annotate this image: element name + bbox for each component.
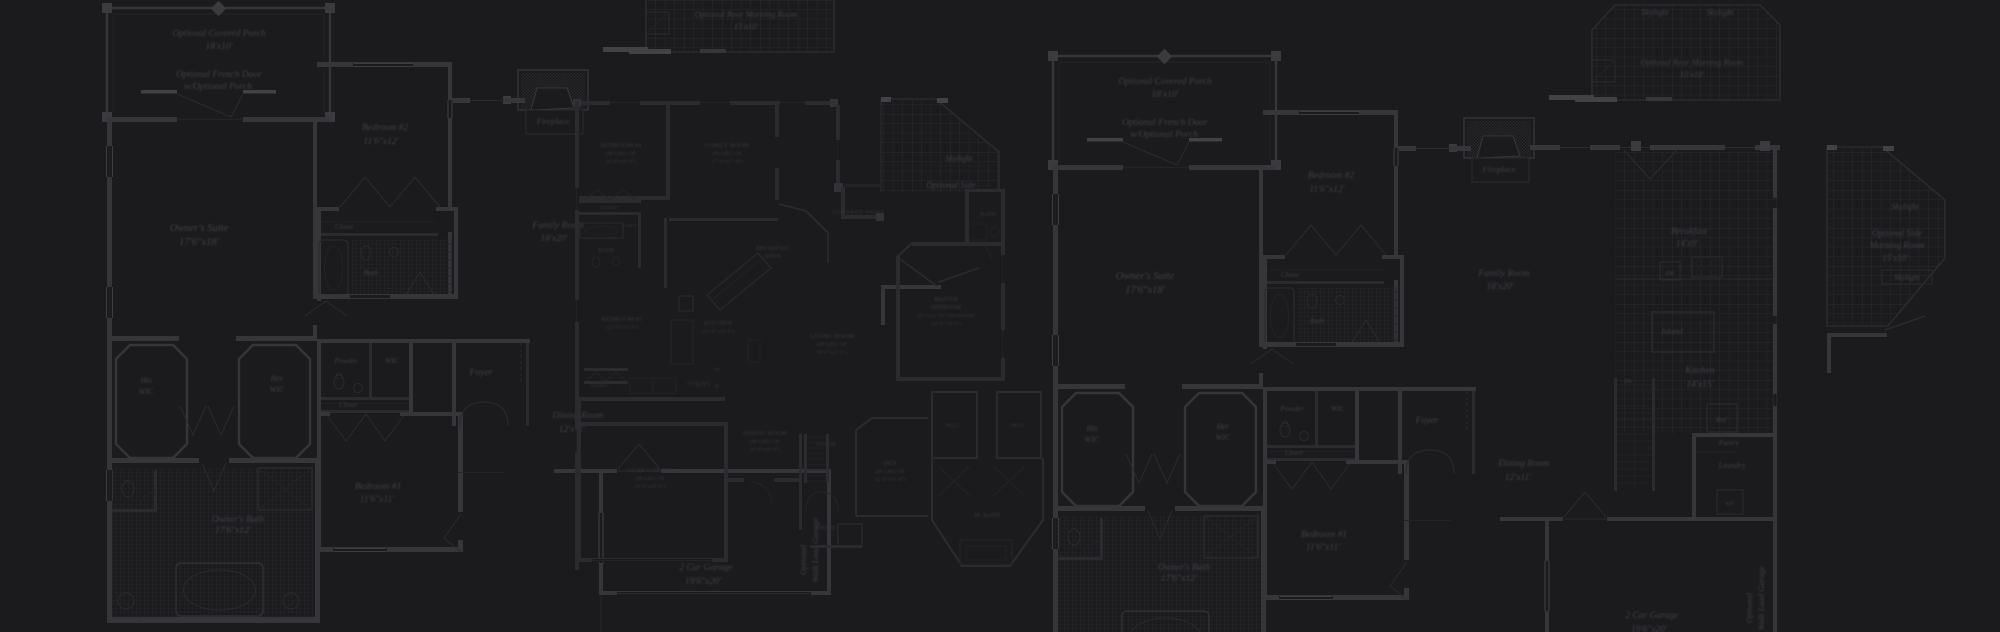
svg-text:Dining Room: Dining Room [1498,459,1550,469]
svg-text:Optional Rear Morning Room: Optional Rear Morning Room [1641,57,1744,67]
svg-text:WIC: WIC [1331,404,1346,413]
svg-text:BATH: BATH [598,248,614,254]
svg-text:LINEN: LINEN [623,223,637,228]
svg-text:15'x10': 15'x10' [1680,69,1705,79]
svg-text:Ref: Ref [1715,415,1727,424]
svg-text:Owner's Suite: Owner's Suite [170,223,229,234]
svg-text:Island: Island [1660,326,1683,336]
svg-text:CLOSET: CLOSET [601,206,620,211]
svg-text:Optional: Optional [798,544,808,575]
svg-text:UTILITY: UTILITY [687,382,711,388]
svg-text:2 Car Garage: 2 Car Garage [1625,611,1678,621]
svg-text:Skylight: Skylight [1706,7,1734,17]
svg-text:Skylight: Skylight [1891,201,1919,211]
svg-text:W.I.C.: W.I.C. [1011,423,1027,429]
svg-text:BEDROOM: BEDROOM [931,305,962,311]
svg-text:(12'-0"x11'-0"): (12'-0"x11'-0") [606,324,639,331]
svg-text:19'6"x20': 19'6"x20' [1631,625,1668,632]
svg-text:(IN LIEU OF: (IN LIEU OF [875,468,905,475]
svg-text:BEDROOM #3: BEDROOM #3 [602,316,643,323]
svg-text:12'-0"x11'-0"): 12'-0"x11'-0") [749,446,780,453]
svg-text:Morning Room: Morning Room [1869,240,1925,250]
svg-text:11'6"x11': 11'6"x11' [360,495,396,505]
svg-text:12'x11': 12'x11' [559,425,587,435]
svg-text:18'x10': 18'x10' [1151,90,1179,100]
svg-text:Kitchen: Kitchen [1684,366,1715,376]
svg-text:LIVING ROOM: LIVING ROOM [810,333,854,340]
svg-text:14'x9': 14'x9' [1676,239,1699,249]
svg-text:(IN LIEU OF: (IN LIEU OF [817,341,847,348]
svg-text:Optional: Optional [1744,592,1754,623]
svg-text:Her: Her [270,374,284,383]
svg-text:Skylight: Skylight [1894,273,1921,282]
svg-text:17'6"x18': 17'6"x18' [1125,285,1166,296]
svg-text:Owner's Bath: Owner's Bath [1158,563,1210,573]
svg-text:Powder: Powder [333,356,357,365]
svg-text:17'6"x12': 17'6"x12' [1161,574,1198,584]
svg-text:17'6"x18': 17'6"x18' [179,237,220,248]
svg-text:Optional Rear Morning Room: Optional Rear Morning Room [695,9,798,19]
svg-text:Optional Side: Optional Side [1872,228,1922,238]
svg-text:w/Optional Porch: w/Optional Porch [184,82,252,92]
svg-text:Walk Load Garage: Walk Load Garage [1756,566,1766,631]
svg-text:Fireplace: Fireplace [1482,164,1516,174]
svg-text:COVERED PATIO: COVERED PATIO [832,210,884,216]
svg-text:Foyer: Foyer [469,368,493,378]
svg-text:18'x20': 18'x20' [540,234,568,244]
svg-text:11'6"x11': 11'6"x11' [1306,543,1342,553]
svg-text:Optional Covered Porch: Optional Covered Porch [1118,77,1211,87]
svg-text:His: His [1085,424,1097,433]
svg-text:(IN LIEU OF: (IN LIEU OF [750,438,780,445]
svg-text:(12'-0"x16'-0"): (12'-0"x16'-0") [931,322,961,327]
svg-text:Pantry: Pantry [1718,438,1740,447]
svg-text:Optional Side: Optional Side [926,180,976,190]
svg-text:Closet: Closet [1285,449,1304,457]
svg-text:19'6"x20': 19'6"x20' [685,577,722,587]
svg-text:BEDROOM #4: BEDROOM #4 [601,142,642,149]
svg-text:15'x10': 15'x10' [734,21,759,31]
svg-text:3 CAR GARAGE: 3 CAR GARAGE [627,467,674,474]
svg-text:Bedroom #2: Bedroom #2 [362,123,409,133]
svg-text:11'6"x12': 11'6"x12' [1309,185,1345,195]
svg-text:FAMILY ROOM: FAMILY ROOM [705,142,750,149]
svg-text:DW: DW [1664,271,1675,277]
svg-text:Optional French Door: Optional French Door [1122,118,1208,128]
svg-text:D: D [715,384,719,390]
svg-text:MASTER: MASTER [934,297,958,303]
svg-text:Her: Her [1216,422,1230,431]
svg-text:WIC: WIC [385,356,400,365]
svg-text:DEN: DEN [883,460,897,467]
svg-text:12'-0"x11'-0"): 12'-0"x11'-0") [874,476,905,483]
svg-text:(IN LIEU OF TWO BDRM): (IN LIEU OF TWO BDRM) [917,314,975,319]
svg-text:(12'-0"x14'-0"): (12'-0"x14'-0") [701,328,734,335]
svg-text:Foyer: Foyer [1415,416,1439,426]
svg-text:WIC: WIC [139,387,154,396]
svg-text:Laundry: Laundry [1717,461,1746,470]
svg-text:Bedroom #1: Bedroom #1 [1301,530,1347,540]
svg-text:Closet: Closet [1281,271,1300,279]
svg-text:Fireplace: Fireplace [536,116,570,126]
svg-text:(IN LIEU OF: (IN LIEU OF [635,475,665,482]
svg-text:ENTRY: ENTRY [816,526,836,532]
svg-text:Owner's Suite: Owner's Suite [1116,271,1175,282]
svg-text:16'-0"x17'-0"): 16'-0"x17'-0") [816,349,847,356]
svg-text:Powder: Powder [1279,404,1303,413]
svg-text:(IN LIEU OF: (IN LIEU OF [712,150,742,157]
svg-text:Optional Covered Porch: Optional Covered Porch [172,29,265,39]
svg-text:Bath: Bath [1310,316,1324,325]
svg-text:11'6"x12': 11'6"x12' [363,137,399,147]
svg-text:DINING ROOM: DINING ROOM [743,430,787,437]
svg-text:Closet: Closet [339,401,358,409]
svg-text:BATH: BATH [980,212,996,218]
svg-text:Breakfast: Breakfast [1671,226,1707,237]
svg-text:Family Room: Family Room [1477,269,1530,279]
svg-text:18'x20': 18'x20' [1486,282,1514,292]
svg-text:M. BATH: M. BATH [974,512,1000,519]
svg-text:12'-4"x11'-0"): 12'-4"x11'-0") [605,158,636,165]
svg-text:2 Car Garage: 2 Car Garage [679,563,732,573]
svg-text:Skylight: Skylight [945,153,973,163]
svg-text:Closet: Closet [335,223,354,231]
svg-text:W: W [714,367,720,373]
svg-text:18'x10': 18'x10' [205,42,233,52]
svg-text:12'x11': 12'x11' [1505,473,1533,483]
svg-text:WIC: WIC [1216,433,1231,442]
svg-text:W.I.C.: W.I.C. [946,423,962,429]
svg-text:CLOSET: CLOSET [591,384,610,389]
svg-text:20'-0"x30'-0"): 20'-0"x30'-0") [634,483,665,490]
svg-text:w/Optional Porch: w/Optional Porch [1130,130,1198,140]
svg-text:17'-0"x17'-0"): 17'-0"x17'-0") [711,158,742,165]
svg-text:WIC: WIC [270,385,285,394]
svg-text:Bedroom #2: Bedroom #2 [1308,171,1355,181]
svg-text:Skylight: Skylight [1641,7,1669,17]
svg-text:(IN LIEU OF: (IN LIEU OF [606,150,636,157]
svg-text:14'x15': 14'x15' [1686,380,1714,390]
svg-text:BREAKFAST: BREAKFAST [756,246,791,252]
svg-text:w.h.: w.h. [1725,501,1735,507]
svg-text:Optional French Door: Optional French Door [176,70,262,80]
svg-text:KITCHEN: KITCHEN [704,320,733,327]
svg-text:Bath: Bath [364,268,378,277]
svg-text:Dn: Dn [1623,378,1632,385]
svg-text:His: His [139,376,151,385]
svg-text:NOOK: NOOK [764,254,782,260]
svg-text:WIC: WIC [1085,435,1100,444]
svg-text:15'x10': 15'x10' [1882,253,1909,263]
svg-text:Owner's Bath: Owner's Bath [212,515,264,525]
svg-text:Bedroom #1: Bedroom #1 [355,482,401,492]
svg-text:17'6"x12': 17'6"x12' [215,526,252,536]
